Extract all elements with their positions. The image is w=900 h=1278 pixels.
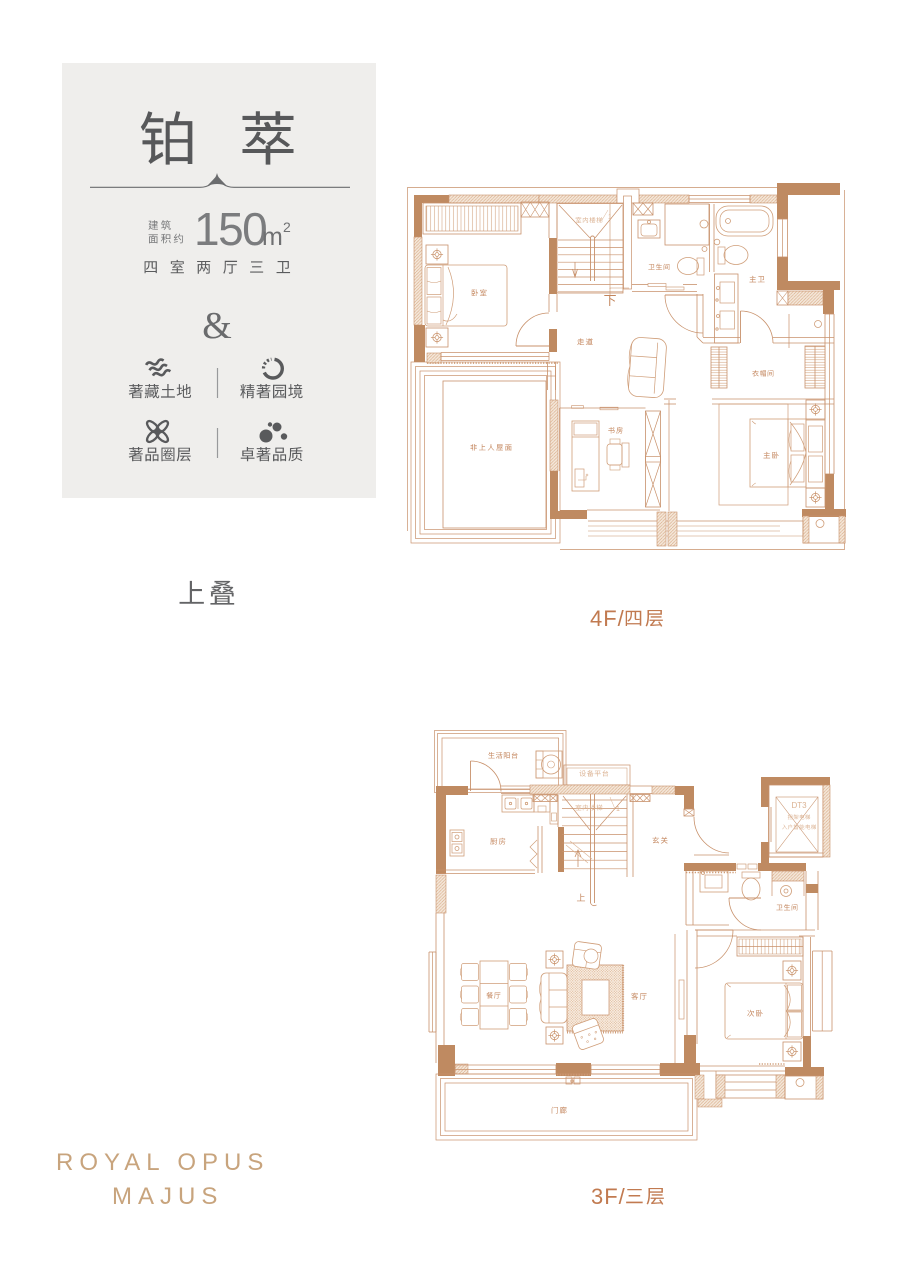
svg-text:3F/: 3F/ [591, 1184, 626, 1209]
svg-text:1: 1 [608, 214, 612, 221]
svg-text:&: & [202, 305, 232, 347]
svg-text:1: 1 [616, 806, 620, 813]
svg-text:ROYAL OPUS: ROYAL OPUS [56, 1149, 269, 1176]
svg-text:DT3: DT3 [791, 801, 807, 810]
svg-text:4F/: 4F/ [590, 606, 625, 631]
svg-text:MAJUS: MAJUS [112, 1183, 223, 1210]
svg-text:2: 2 [283, 219, 291, 235]
svg-text:150: 150 [194, 203, 266, 255]
svg-text:m: m [262, 223, 283, 251]
